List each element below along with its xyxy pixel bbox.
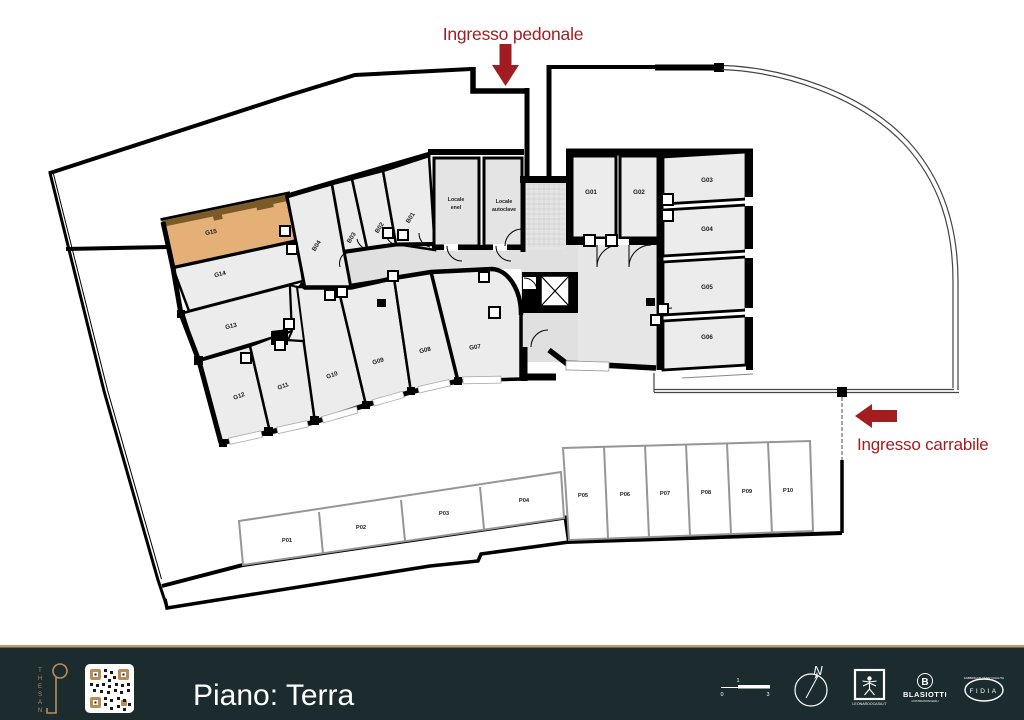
svg-text:G01: G01 — [585, 189, 597, 196]
svg-text:P07: P07 — [660, 491, 670, 497]
svg-text:Piano: Terra: Piano: Terra — [193, 679, 355, 712]
svg-text:G04: G04 — [701, 226, 713, 233]
svg-text:P08: P08 — [701, 490, 712, 496]
svg-text:P04: P04 — [519, 498, 530, 504]
svg-text:G02: G02 — [633, 189, 645, 196]
svg-text:H: H — [38, 676, 42, 682]
svg-text:FIDIA: FIDIA — [969, 688, 998, 695]
svg-text:Locale: Locale — [496, 199, 513, 205]
svg-text:autoclave: autoclave — [492, 207, 516, 213]
svg-text:enel: enel — [451, 205, 462, 211]
svg-text:N: N — [38, 708, 42, 714]
svg-text:Ingresso pedonale: Ingresso pedonale — [443, 24, 584, 44]
svg-text:3: 3 — [766, 692, 769, 698]
svg-text:P02: P02 — [356, 525, 366, 531]
svg-text:N: N — [813, 663, 823, 678]
svg-text:E: E — [38, 684, 42, 690]
svg-text:P05: P05 — [578, 493, 589, 499]
svg-text:S: S — [38, 692, 42, 698]
svg-text:LEONARDOCASA.IT: LEONARDOCASA.IT — [852, 702, 887, 706]
svg-text:G06: G06 — [701, 334, 713, 341]
svg-text:P10: P10 — [783, 488, 793, 494]
svg-text:Locale: Locale — [448, 197, 465, 203]
svg-text:0: 0 — [720, 692, 723, 698]
svg-text:P09: P09 — [742, 489, 753, 495]
svg-text:A: A — [38, 700, 42, 706]
svg-text:1: 1 — [736, 678, 739, 684]
svg-text:P03: P03 — [439, 511, 450, 517]
svg-text:COSTRUZIONI EDILI: COSTRUZIONI EDILI — [911, 699, 938, 703]
svg-text:FABBRICATI OVER QUALITA: FABBRICATI OVER QUALITA — [964, 676, 1004, 680]
svg-text:T: T — [38, 668, 42, 674]
svg-text:G03: G03 — [701, 177, 713, 184]
svg-text:B: B — [921, 677, 928, 688]
svg-text:G05: G05 — [701, 284, 713, 291]
svg-text:P01: P01 — [282, 538, 293, 544]
svg-text:BLASIOTTI: BLASIOTTI — [903, 690, 947, 699]
svg-text:P06: P06 — [620, 492, 631, 498]
svg-text:Ingresso carrabile: Ingresso carrabile — [857, 435, 989, 454]
